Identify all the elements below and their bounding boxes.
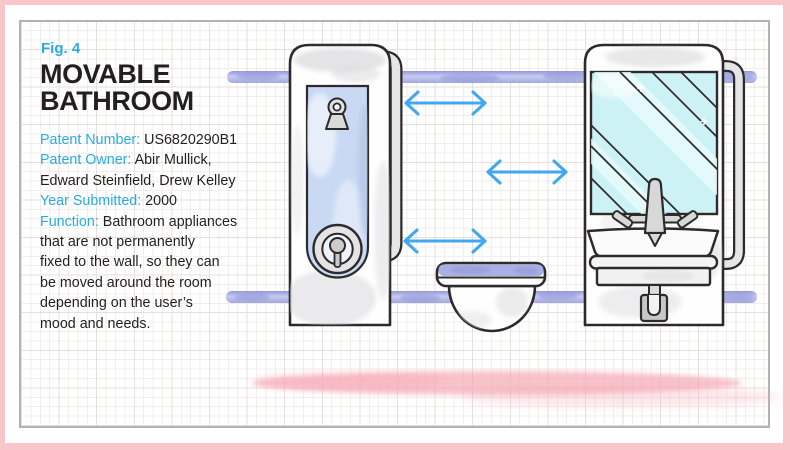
sink-pedestal [590, 256, 717, 285]
toilet-seat [437, 263, 545, 286]
toilet [437, 263, 545, 331]
bathroom-illustration [0, 0, 790, 450]
pink-smear [252, 371, 780, 407]
movement-arrows [405, 92, 566, 252]
shower-dial-icon [314, 225, 362, 273]
mirror [560, 58, 790, 240]
arrow-middle [488, 161, 566, 183]
sink-mirror-unit [560, 45, 790, 325]
arrow-bottom [405, 230, 485, 252]
toilet-bowl [449, 286, 535, 331]
arrow-top [406, 92, 485, 114]
infographic-canvas: Fig. 4 MOVABLE BATHROOM Patent Number: U… [0, 0, 790, 450]
shower-unit [284, 45, 392, 326]
